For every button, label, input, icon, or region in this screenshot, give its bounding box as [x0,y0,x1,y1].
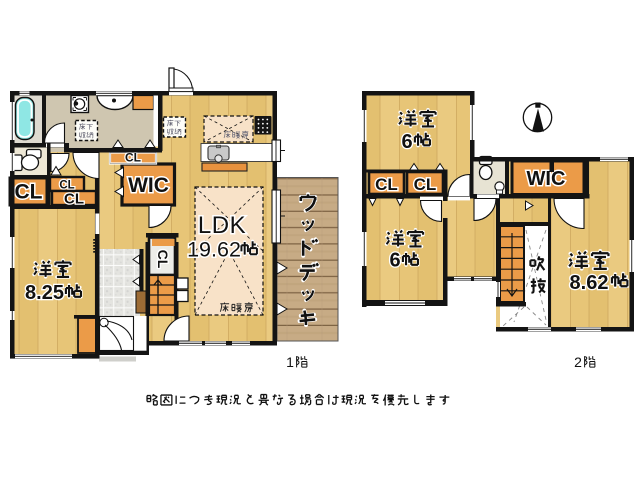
svg-text:CL: CL [125,151,141,165]
svg-text:CL: CL [155,250,171,269]
svg-text:6: 6 [389,250,400,272]
svg-text:1: 1 [286,354,294,370]
svg-text:19.62: 19.62 [187,238,241,262]
svg-text:8.62: 8.62 [570,272,609,294]
svg-text:CL: CL [64,191,84,208]
svg-text:LDK: LDK [198,212,246,239]
svg-text:CL: CL [375,175,398,194]
svg-text:WIC: WIC [527,168,566,190]
svg-text:CL: CL [414,175,437,194]
svg-text:6: 6 [401,131,412,153]
svg-text:WIC: WIC [128,174,169,197]
svg-text:8.25: 8.25 [25,282,64,304]
svg-text:CL: CL [15,181,43,204]
svg-text:2: 2 [574,354,582,370]
